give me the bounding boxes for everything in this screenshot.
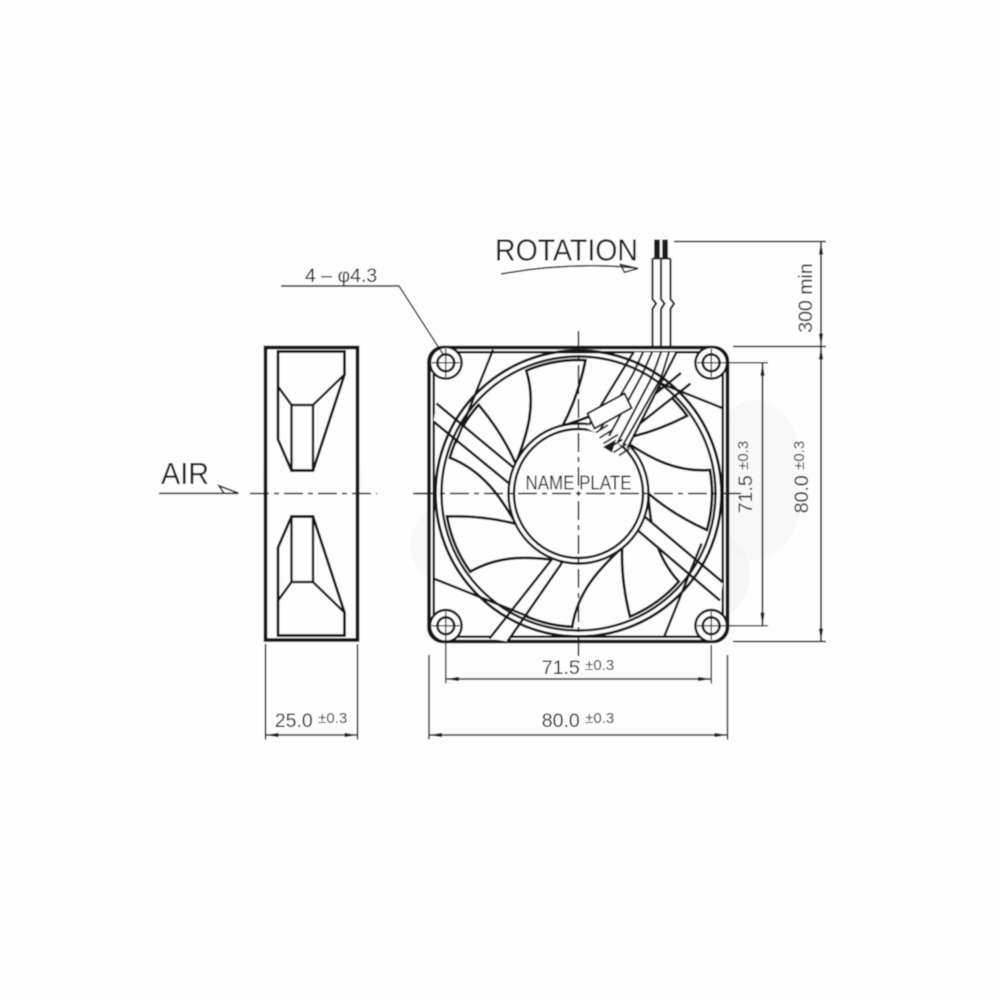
svg-text:AIR: AIR (161, 456, 209, 491)
svg-text:4 – φ4.3: 4 – φ4.3 (305, 265, 377, 287)
svg-text:300 min: 300 min (795, 263, 817, 332)
svg-text:ROTATION: ROTATION (495, 234, 638, 268)
